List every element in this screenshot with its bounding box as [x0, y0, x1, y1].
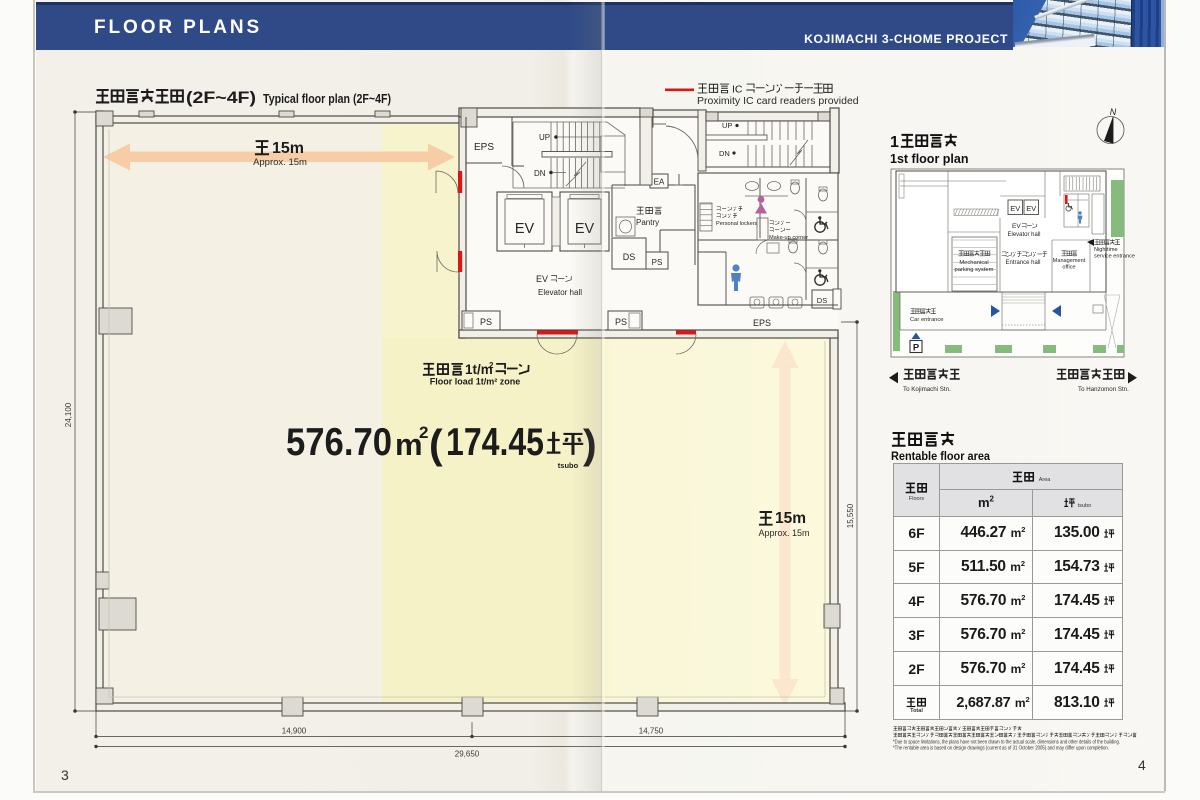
svg-text:DS: DS: [817, 296, 827, 305]
svg-text:Approx. 15m: Approx. 15m: [758, 528, 809, 538]
svg-text:15,550: 15,550: [846, 503, 855, 528]
svg-text:DN: DN: [719, 149, 730, 158]
svg-text:EV: EV: [515, 221, 535, 237]
svg-text:*The rentable area is based on: *The rentable area is based on design dr…: [893, 746, 1109, 752]
svg-text:Pantry: Pantry: [636, 218, 659, 227]
svg-text:4: 4: [1138, 757, 1146, 773]
svg-text:IC: IC: [732, 84, 743, 96]
svg-text:P: P: [913, 343, 920, 354]
svg-text:1: 1: [890, 134, 899, 151]
svg-text:To Kojimachi Stn.: To Kojimachi Stn.: [903, 386, 951, 393]
svg-text:14,900: 14,900: [282, 727, 307, 736]
svg-text:UP: UP: [539, 133, 550, 142]
svg-text:2: 2: [419, 423, 428, 442]
svg-text:To Hanzomon Stn.: To Hanzomon Stn.: [1078, 386, 1129, 393]
svg-text:service entrance: service entrance: [1094, 254, 1135, 260]
svg-text:Rentable floor area: Rentable floor area: [891, 449, 990, 463]
svg-text:EV: EV: [1026, 204, 1036, 213]
svg-text:Typical floor plan (2F~4F): Typical floor plan (2F~4F): [263, 92, 391, 106]
svg-text:UP: UP: [722, 121, 732, 130]
svg-text:PS: PS: [652, 258, 663, 267]
svg-text:EPS: EPS: [474, 142, 494, 153]
svg-text:EV: EV: [1012, 223, 1021, 230]
svg-text:Management: Management: [1053, 258, 1086, 264]
svg-text:Personal lockers: Personal lockers: [716, 221, 758, 227]
svg-text:EV: EV: [1010, 204, 1020, 213]
svg-text:29,650: 29,650: [455, 750, 480, 759]
svg-text:PS: PS: [615, 317, 627, 327]
svg-text:DN: DN: [534, 169, 546, 178]
svg-text:Approx. 15m: Approx. 15m: [253, 157, 307, 168]
svg-text:(2F~4F): (2F~4F): [186, 88, 256, 107]
svg-text:N: N: [1110, 107, 1117, 117]
svg-text:(: (: [429, 421, 443, 467]
svg-text:EA: EA: [654, 178, 665, 187]
svg-text:Car entrance: Car entrance: [910, 317, 944, 323]
svg-text:PS: PS: [480, 317, 492, 327]
svg-text:EV: EV: [536, 274, 548, 284]
svg-text:EPS: EPS: [753, 318, 771, 328]
svg-text:Floor load 1t/m² zone: Floor load 1t/m² zone: [430, 377, 521, 387]
svg-text:24,100: 24,100: [64, 402, 73, 427]
svg-text:office: office: [1062, 265, 1075, 271]
svg-text:Elevator hall: Elevator hall: [1007, 232, 1040, 238]
svg-text:576.70: 576.70: [286, 421, 392, 464]
svg-text:Mechanical: Mechanical: [959, 260, 988, 266]
svg-text:15m: 15m: [272, 140, 304, 157]
svg-text:Proximity IC card readers prov: Proximity IC card readers provided: [697, 95, 859, 107]
svg-text:Entrance hall: Entrance hall: [1005, 260, 1040, 266]
svg-text:1st floor plan: 1st floor plan: [890, 152, 968, 166]
svg-text:Make-up corner: Make-up corner: [769, 235, 808, 241]
svg-text:3: 3: [61, 767, 69, 783]
svg-text:174.45: 174.45: [446, 421, 544, 464]
svg-text:Nighttime: Nighttime: [1094, 247, 1118, 253]
svg-text:14,750: 14,750: [639, 727, 664, 736]
svg-text:DS: DS: [623, 252, 636, 262]
svg-text:2: 2: [489, 361, 494, 370]
svg-text:15m: 15m: [775, 510, 806, 527]
svg-text:parking system: parking system: [955, 267, 994, 273]
